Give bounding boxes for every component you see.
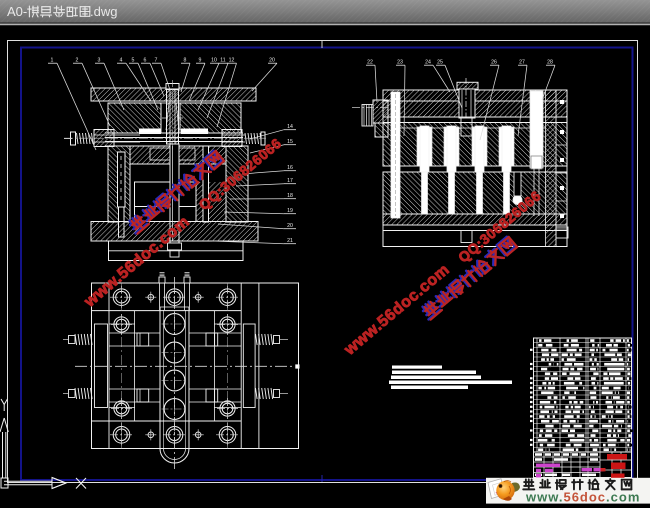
svg-text:3: 3 bbox=[98, 58, 101, 64]
svg-text:A0-: A0- bbox=[7, 4, 27, 19]
svg-text:11: 11 bbox=[220, 58, 225, 64]
svg-text:.dwg: .dwg bbox=[90, 4, 117, 19]
svg-text:7: 7 bbox=[155, 58, 158, 64]
svg-text:20: 20 bbox=[269, 58, 275, 64]
svg-text:23: 23 bbox=[397, 60, 403, 66]
svg-text:www.56doc.com: www.56doc.com bbox=[525, 490, 640, 505]
svg-text:10: 10 bbox=[211, 58, 217, 64]
svg-text:26: 26 bbox=[491, 60, 497, 66]
svg-text:6: 6 bbox=[144, 58, 147, 64]
svg-text:16: 16 bbox=[287, 165, 293, 171]
svg-text:28: 28 bbox=[547, 60, 553, 66]
svg-text:19: 19 bbox=[287, 208, 293, 214]
svg-text:9: 9 bbox=[199, 58, 202, 64]
svg-text:24: 24 bbox=[425, 60, 431, 66]
svg-text:14: 14 bbox=[287, 124, 293, 130]
svg-text:15: 15 bbox=[287, 139, 293, 145]
svg-text:22: 22 bbox=[367, 60, 373, 66]
svg-text:17: 17 bbox=[287, 178, 293, 184]
svg-text:20: 20 bbox=[287, 223, 293, 229]
svg-text:21: 21 bbox=[287, 238, 293, 244]
svg-text:2: 2 bbox=[76, 58, 79, 64]
svg-text:8: 8 bbox=[184, 58, 187, 64]
svg-text:27: 27 bbox=[519, 60, 525, 66]
svg-text:5: 5 bbox=[132, 58, 135, 64]
svg-text:1: 1 bbox=[51, 58, 54, 64]
svg-text:18: 18 bbox=[287, 193, 293, 199]
svg-text:4: 4 bbox=[120, 58, 123, 64]
svg-text:25: 25 bbox=[437, 60, 443, 66]
svg-text:12: 12 bbox=[229, 58, 235, 64]
